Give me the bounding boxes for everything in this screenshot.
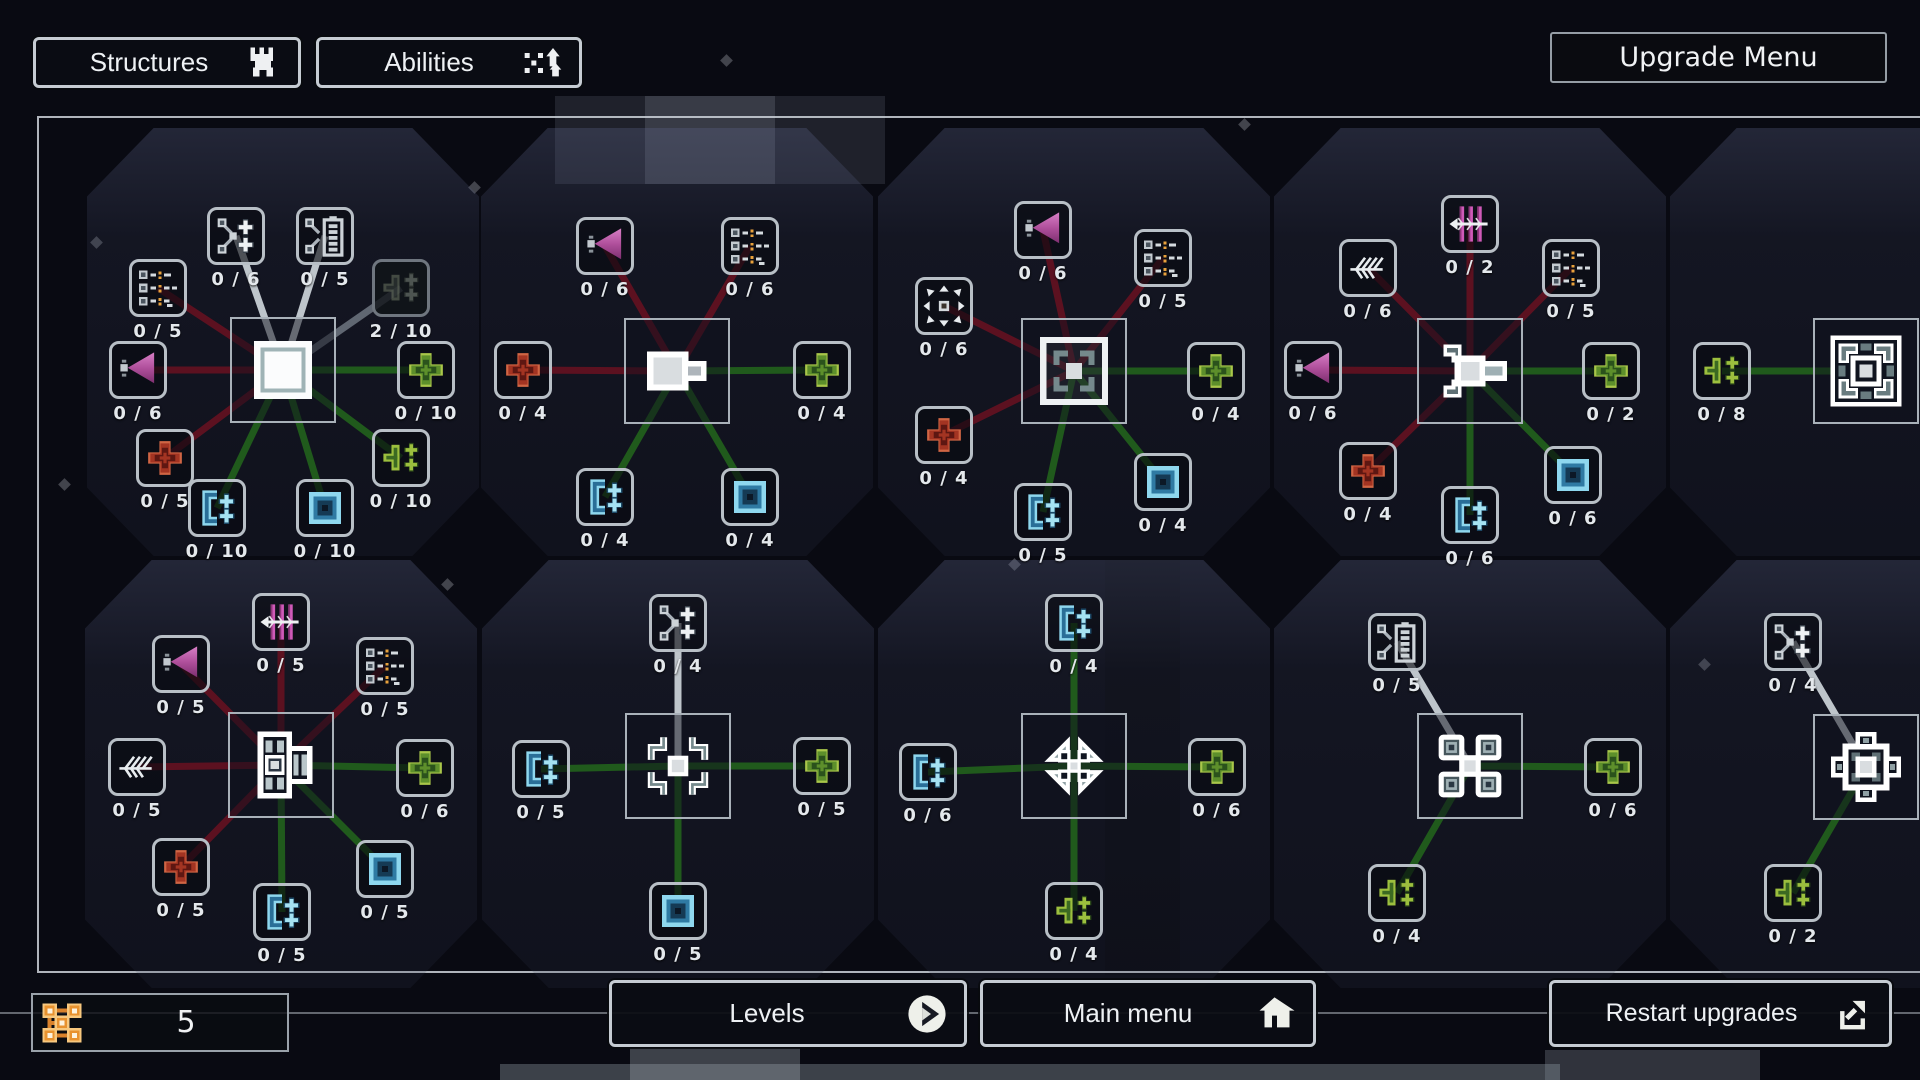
- upgrade-count: 0 / 5: [330, 902, 440, 923]
- structure-fan-blades[interactable]: [1021, 713, 1127, 819]
- upgrade-count: 0 / 6: [1415, 548, 1525, 569]
- upgrade-count: 0 / 6: [695, 279, 805, 300]
- upgrade-count: 0 / 6: [1313, 301, 1423, 322]
- structure-wall[interactable]: [230, 317, 336, 423]
- blue-square-icon: [303, 486, 347, 530]
- blue-square-icon: [1141, 460, 1185, 504]
- pierce-feather-icon: [1346, 246, 1390, 290]
- attack-cone-icon: [1291, 348, 1335, 392]
- upgrade-node-stat-list[interactable]: [1134, 229, 1192, 287]
- plus-green-icon: [800, 348, 844, 392]
- upgrade-node-plus-green[interactable]: [1584, 738, 1642, 796]
- plus-green-icon: [1195, 745, 1239, 789]
- upgrade-node-pierce-feather[interactable]: [1339, 239, 1397, 297]
- structure-turret[interactable]: [1417, 318, 1523, 424]
- upgrade-count: 0 / 6: [550, 279, 660, 300]
- upgrade-count: 0 / 10: [162, 541, 272, 562]
- upgrade-count: 0 / 6: [889, 339, 999, 360]
- home-icon: [1257, 994, 1297, 1034]
- upgrade-node-blue-square[interactable]: [721, 468, 779, 526]
- multi-plus-green-icon: [1771, 871, 1815, 915]
- stat-list-icon: [136, 266, 180, 310]
- fan-blades-icon: [1037, 729, 1111, 803]
- stat-list-icon: [1549, 246, 1593, 290]
- upgrade-count: 0 / 5: [270, 269, 380, 290]
- upgrade-count: 0 / 5: [767, 799, 877, 820]
- upgrade-count: 0 / 10: [371, 403, 481, 424]
- upgrade-node-plus-red[interactable]: [494, 341, 552, 399]
- castle-icon: [246, 45, 282, 81]
- upgrade-count: 0 / 5: [227, 945, 337, 966]
- upgrade-node-blue-square[interactable]: [1134, 453, 1192, 511]
- upgrade-count: 0 / 6: [1558, 800, 1668, 821]
- upgrade-count: 0 / 5: [82, 800, 192, 821]
- upgrade-node-plus-red[interactable]: [136, 429, 194, 487]
- blue-square-icon: [656, 889, 700, 933]
- upgrade-node-stat-list[interactable]: [356, 637, 414, 695]
- upgrade-node-pierce-feather[interactable]: [108, 738, 166, 796]
- points-display: 5: [31, 993, 289, 1052]
- upgrade-node-blue-bracket-plus[interactable]: [1045, 594, 1103, 652]
- blue-bracket-plus-icon: [583, 475, 627, 519]
- levels-button[interactable]: Levels: [609, 980, 967, 1047]
- tab-abilities[interactable]: Abilities: [316, 37, 582, 88]
- blue-square-icon: [1551, 453, 1595, 497]
- play-icon: [906, 993, 948, 1035]
- main-menu-button[interactable]: Main menu: [980, 980, 1316, 1047]
- upgrade-count: 0 / 6: [83, 403, 193, 424]
- upgrade-node-plus-red[interactable]: [152, 838, 210, 896]
- abilities-label: Abilities: [335, 47, 523, 78]
- multi-plus-green-icon: [379, 436, 423, 480]
- upgrade-node-attack-cone[interactable]: [109, 341, 167, 399]
- upgrade-count: 0 / 4: [1313, 504, 1423, 525]
- stat-list-icon: [1141, 236, 1185, 280]
- bg-decoration: [630, 1048, 800, 1080]
- upgrade-node-plus-red[interactable]: [1339, 442, 1397, 500]
- plus-red-icon: [143, 436, 187, 480]
- upgrade-count: 0 / 5: [623, 944, 733, 965]
- blue-square-icon: [363, 847, 407, 891]
- range-arrows-icon: [922, 284, 966, 328]
- upgrade-count: 0 / 8: [1667, 404, 1777, 425]
- upgrade-count: 0 / 4: [695, 530, 805, 551]
- structures-label: Structures: [52, 47, 246, 78]
- upgrade-count: 0 / 10: [346, 491, 456, 512]
- upgrade-node-blue-bracket-plus[interactable]: [1441, 486, 1499, 544]
- branch-battery-icon: [303, 214, 347, 258]
- upgrade-count: 0 / 6: [1258, 403, 1368, 424]
- multi-plus-green-icon: [1052, 889, 1096, 933]
- upgrade-count: 0 / 5: [330, 699, 440, 720]
- blue-bracket-plus-icon: [1052, 601, 1096, 645]
- upgrade-node-multi-plus-green[interactable]: [372, 429, 430, 487]
- upgrade-node-attack-cone[interactable]: [576, 217, 634, 275]
- upgrade-node-stat-list[interactable]: [721, 217, 779, 275]
- upgrade-count: 0 / 6: [370, 801, 480, 822]
- fortress-icon: [1829, 334, 1903, 408]
- upgrade-count: 0 / 4: [889, 468, 999, 489]
- upgrade-count: 0 / 5: [988, 545, 1098, 566]
- upgrade-count: 0 / 4: [468, 403, 578, 424]
- upgrade-node-blue-bracket-plus[interactable]: [576, 468, 634, 526]
- upgrade-node-blue-bracket-plus[interactable]: [188, 479, 246, 537]
- plus-faded-icon: [379, 266, 423, 310]
- plus-red-icon: [159, 845, 203, 889]
- upgrade-count: 0 / 4: [767, 403, 877, 424]
- blue-bracket-plus-icon: [1448, 493, 1492, 537]
- upgrade-count: 0 / 5: [1342, 675, 1452, 696]
- ballista-icon: [244, 728, 318, 802]
- tab-structures[interactable]: Structures: [33, 37, 301, 88]
- bg-decoration: [720, 54, 733, 67]
- upgrade-node-blue-square[interactable]: [356, 840, 414, 898]
- upgrade-node-stat-list[interactable]: [1542, 239, 1600, 297]
- upgrade-node-branch-plus[interactable]: [1764, 613, 1822, 671]
- upgrade-node-multi-plus-green[interactable]: [1045, 882, 1103, 940]
- upgrade-node-plus-faded[interactable]: [372, 259, 430, 317]
- trap-icon: [1037, 334, 1111, 408]
- upgrade-node-multi-plus-green[interactable]: [1693, 342, 1751, 400]
- upgrade-node-claw-strike[interactable]: [1441, 195, 1499, 253]
- upgrade-count: 0 / 4: [1108, 515, 1218, 536]
- upgrade-node-branch-battery[interactable]: [1368, 613, 1426, 671]
- upgrade-node-plus-green[interactable]: [793, 737, 851, 795]
- upgrade-count: 0 / 5: [103, 321, 213, 342]
- upgrade-node-blue-square[interactable]: [296, 479, 354, 537]
- plus-green-icon: [404, 348, 448, 392]
- upgrade-count: 0 / 2: [1738, 926, 1848, 947]
- attack-cone-icon: [1021, 208, 1065, 252]
- claw-strike-icon: [1448, 202, 1492, 246]
- upgrade-node-multi-plus-green[interactable]: [1368, 864, 1426, 922]
- upgrade-count: 0 / 2: [1415, 257, 1525, 278]
- upgrade-node-attack-cone[interactable]: [1014, 201, 1072, 259]
- plus-green-icon: [1194, 349, 1238, 393]
- upgrade-node-branch-battery[interactable]: [296, 207, 354, 265]
- upgrade-count: 0 / 5: [226, 655, 336, 676]
- plus-red-icon: [922, 413, 966, 457]
- blue-bracket-plus-icon: [1021, 490, 1065, 534]
- main-menu-label: Main menu: [999, 998, 1257, 1029]
- attack-cone-icon: [116, 348, 160, 392]
- points-value: 5: [85, 1005, 287, 1040]
- plus-green-icon: [1589, 349, 1633, 393]
- upgrade-node-plus-green[interactable]: [1187, 342, 1245, 400]
- bg-decoration: [1545, 1050, 1760, 1080]
- upgrade-count: 0 / 4: [1342, 926, 1452, 947]
- restart-icon: [1835, 995, 1873, 1033]
- upgrade-count: 0 / 4: [1019, 944, 1129, 965]
- upgrade-count: 0 / 10: [270, 541, 380, 562]
- upgrade-count: 2 / 10: [346, 321, 456, 342]
- upgrade-node-claw-strike[interactable]: [252, 593, 310, 651]
- upgrade-count: 0 / 6: [1162, 800, 1272, 821]
- branch-plus-icon: [1771, 620, 1815, 664]
- levels-label: Levels: [628, 998, 906, 1029]
- turret-icon: [1433, 334, 1507, 408]
- upgrade-node-plus-red[interactable]: [915, 406, 973, 464]
- upgrade-count: 0 / 5: [126, 900, 236, 921]
- restart-upgrades-label: Restart upgrades: [1568, 999, 1835, 1028]
- structure-frost-cross[interactable]: [625, 713, 731, 819]
- upgrade-count: 0 / 4: [550, 530, 660, 551]
- upgrade-count: 0 / 4: [1738, 675, 1848, 696]
- restart-upgrades-button[interactable]: Restart upgrades: [1549, 980, 1892, 1047]
- cross-structure-icon: [1433, 729, 1507, 803]
- plus-green-icon: [800, 744, 844, 788]
- upgrade-count: 0 / 6: [988, 263, 1098, 284]
- upgrade-node-blue-bracket-plus[interactable]: [512, 740, 570, 798]
- stat-list-icon: [728, 224, 772, 268]
- upgrade-node-blue-square[interactable]: [649, 882, 707, 940]
- upgrade-node-plus-green[interactable]: [397, 341, 455, 399]
- branch-plus-icon: [214, 214, 258, 258]
- upgrade-menu-screen: Structures Abilities Upgrade Menu 5 Leve…: [0, 0, 1920, 1080]
- upgrade-node-stat-list[interactable]: [129, 259, 187, 317]
- upgrade-node-blue-bracket-plus[interactable]: [899, 743, 957, 801]
- plus-red-icon: [501, 348, 545, 392]
- structure-cross-structure[interactable]: [1417, 713, 1523, 819]
- upgrade-node-plus-green[interactable]: [1582, 342, 1640, 400]
- upgrade-count: 0 / 2: [1556, 404, 1666, 425]
- upgrade-count: 0 / 4: [623, 656, 733, 677]
- plus-red-icon: [1346, 449, 1390, 493]
- attack-cone-icon: [159, 642, 203, 686]
- structure-trap[interactable]: [1021, 318, 1127, 424]
- multi-plus-green-icon: [1375, 871, 1419, 915]
- multi-plus-green-icon: [1700, 349, 1744, 393]
- plus-green-icon: [403, 746, 447, 790]
- branch-battery-icon: [1375, 620, 1419, 664]
- frost-cross-icon: [641, 729, 715, 803]
- upgrade-node-multi-plus-green[interactable]: [1764, 864, 1822, 922]
- upgrade-node-plus-green[interactable]: [793, 341, 851, 399]
- upgrade-count: 0 / 5: [486, 802, 596, 823]
- stat-list-icon: [363, 644, 407, 688]
- structure-fortress[interactable]: [1813, 318, 1919, 424]
- blue-bracket-plus-icon: [195, 486, 239, 530]
- structure-gate[interactable]: [624, 318, 730, 424]
- upgrade-count: 0 / 5: [126, 697, 236, 718]
- points-icon: [39, 1000, 85, 1046]
- abilities-icon: [523, 43, 563, 83]
- upgrade-node-branch-plus[interactable]: [207, 207, 265, 265]
- page-title: Upgrade Menu: [1550, 32, 1887, 83]
- upgrade-node-blue-bracket-plus[interactable]: [1014, 483, 1072, 541]
- claw-strike-icon: [259, 600, 303, 644]
- upgrade-count: 0 / 4: [1161, 404, 1271, 425]
- gate-icon: [640, 334, 714, 408]
- structure-citadel[interactable]: [1813, 714, 1919, 820]
- upgrade-node-branch-plus[interactable]: [649, 594, 707, 652]
- upgrade-count: 0 / 5: [1108, 291, 1218, 312]
- upgrade-node-blue-bracket-plus[interactable]: [253, 883, 311, 941]
- upgrade-count: 0 / 6: [873, 805, 983, 826]
- upgrade-node-plus-green[interactable]: [1188, 738, 1246, 796]
- blue-bracket-plus-icon: [260, 890, 304, 934]
- upgrade-node-plus-green[interactable]: [396, 739, 454, 797]
- upgrade-count: 0 / 5: [1516, 301, 1626, 322]
- upgrade-node-attack-cone[interactable]: [1284, 341, 1342, 399]
- branch-plus-icon: [656, 601, 700, 645]
- attack-cone-icon: [583, 224, 627, 268]
- pierce-feather-icon: [115, 745, 159, 789]
- upgrade-node-attack-cone[interactable]: [152, 635, 210, 693]
- wall-icon: [246, 333, 320, 407]
- structure-ballista[interactable]: [228, 712, 334, 818]
- blue-square-icon: [728, 475, 772, 519]
- citadel-icon: [1829, 730, 1903, 804]
- upgrade-menu-title: Upgrade Menu: [1619, 42, 1817, 73]
- upgrade-count: 0 / 4: [1019, 656, 1129, 677]
- upgrade-node-range-arrows[interactable]: [915, 277, 973, 335]
- blue-bracket-plus-icon: [906, 750, 950, 794]
- plus-green-icon: [1591, 745, 1635, 789]
- upgrade-count: 0 / 6: [1518, 508, 1628, 529]
- blue-bracket-plus-icon: [519, 747, 563, 791]
- upgrade-node-blue-square[interactable]: [1544, 446, 1602, 504]
